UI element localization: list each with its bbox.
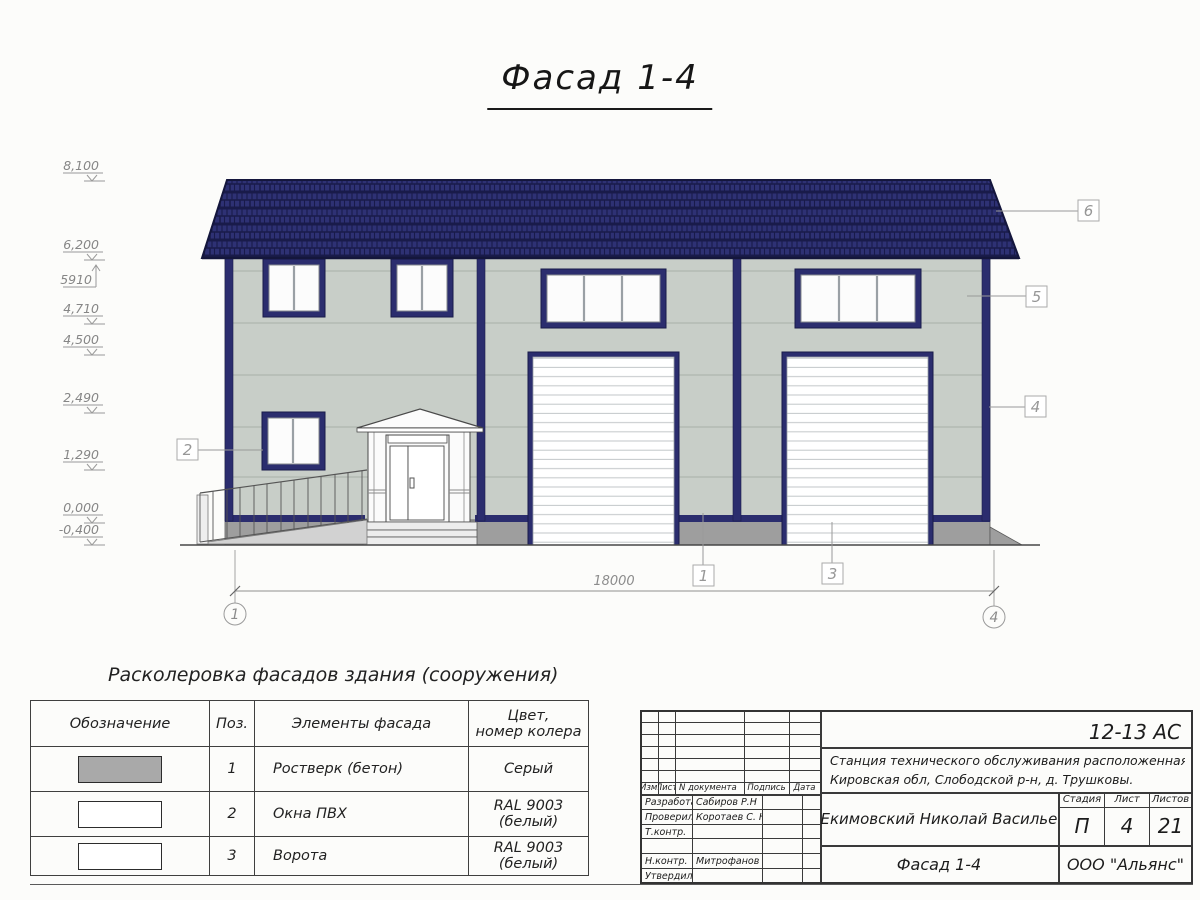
legend-header-pos: Поз.	[210, 701, 255, 747]
roof	[202, 180, 1019, 258]
legend-row: 3 Ворота RAL 9003 (белый)	[31, 837, 589, 876]
stamp-name: Сабиров Р.Н	[696, 796, 762, 809]
legend-color: RAL 9003 (белый)	[469, 792, 589, 837]
plinth-right-wedge	[990, 527, 1022, 545]
stamp-role: Н.контр.	[645, 855, 692, 868]
window-upper-mid	[391, 259, 453, 317]
svg-text:5910: 5910	[60, 272, 92, 287]
stamp-object-line2: Кировская обл, Слободской р-н, д. Трушко…	[830, 769, 1185, 789]
stamp-role: Утвердил	[645, 870, 692, 882]
gate-center	[528, 352, 679, 545]
dimension-line: 18000	[230, 550, 999, 606]
elevation-mark: 4,500	[63, 332, 105, 355]
svg-text:3: 3	[828, 565, 838, 583]
legend-color: RAL 9003 (белый)	[469, 837, 589, 876]
elevation-mark: 4,710	[63, 301, 105, 324]
legend-element: Ворота	[255, 837, 469, 876]
swatch-white	[78, 843, 162, 870]
elevation-mark: 0,000	[63, 500, 105, 523]
stamp-role: Т.контр.	[645, 826, 692, 838]
svg-text:4: 4	[1031, 398, 1041, 416]
swatch-white	[78, 801, 162, 828]
elevation-marks: 8,100 6,200 5910 4,710 4,500	[59, 158, 105, 545]
drawing-sheet: Фасад 1-4	[0, 0, 1200, 900]
stamp-object-line1: Станция технического обслуживания распол…	[830, 750, 1185, 770]
legend-color: Серый	[469, 747, 589, 792]
stamp-stage-value: П	[1060, 808, 1104, 844]
svg-text:2,490: 2,490	[63, 390, 99, 405]
stamp-sheets-label: Листов	[1150, 793, 1191, 806]
window-upper-left	[263, 259, 325, 317]
elevation-mark: -0,400	[59, 522, 105, 545]
legend-pos: 3	[210, 837, 255, 876]
elevation-mark: 2,490	[63, 390, 105, 413]
porch-steps	[363, 522, 477, 545]
svg-text:5: 5	[1032, 288, 1042, 306]
svg-text:0,000: 0,000	[63, 500, 99, 515]
svg-text:6,200: 6,200	[63, 237, 99, 252]
stamp-company: ООО "Альянс"	[1060, 847, 1191, 882]
stamp-role: Проверил	[645, 811, 692, 824]
callout-6: 6	[996, 200, 1099, 221]
stamp-sheet-value: 4	[1105, 808, 1149, 844]
legend-title: Расколеровка фасадов здания (сооружения)	[108, 664, 558, 686]
gate-right	[782, 352, 933, 545]
svg-text:1: 1	[699, 567, 709, 585]
svg-text:1: 1	[231, 607, 240, 623]
svg-text:8,100: 8,100	[63, 158, 99, 173]
stamp-col-ndoc: N документа	[679, 782, 744, 794]
title-block: Изм. Лист N документа Подпись Дата Разра…	[640, 710, 1193, 884]
legend-header-row: Обозначение Поз. Элементы фасада Цвет, н…	[31, 701, 589, 747]
stamp-sheet-label: Лист	[1105, 793, 1149, 806]
stamp-role: Разработал	[645, 796, 692, 809]
svg-text:4,710: 4,710	[63, 301, 99, 316]
legend-pos: 1	[210, 747, 255, 792]
stamp-col-list: Лист	[658, 782, 675, 794]
svg-text:6: 6	[1084, 202, 1094, 220]
stamp-name: Коротаев С. Н.	[696, 811, 762, 824]
window-wide-center	[541, 269, 666, 328]
svg-text:4: 4	[990, 610, 999, 626]
legend-header-color: Цвет, номер колера	[469, 701, 589, 747]
stamp-col-data: Дата	[789, 782, 820, 794]
stamp-sheets-value: 21	[1150, 808, 1191, 844]
legend-element: Окна ПВХ	[255, 792, 469, 837]
elevation-mark: 1,290	[63, 447, 105, 470]
stamp-col-izm: Изм.	[642, 782, 658, 794]
door-handle	[410, 478, 414, 488]
swatch-gray	[78, 756, 162, 783]
dimension-value: 18000	[593, 574, 634, 589]
legend-element: Ростверк (бетон)	[255, 747, 469, 792]
legend-pos: 2	[210, 792, 255, 837]
door-transom	[388, 435, 447, 443]
stamp-doc-code: 12-13 АС	[820, 718, 1181, 745]
stamp-name: Митрофанов Я. А.	[696, 855, 762, 868]
legend-header-element: Элементы фасада	[255, 701, 469, 747]
stamp-stage-label: Стадия	[1060, 793, 1104, 806]
entrance-porch	[357, 409, 483, 545]
elevation-mark: 6,200	[63, 237, 105, 260]
facade-drawing: 8,100 6,200 5910 4,710 4,500	[0, 0, 1200, 660]
axis-marker-right: 4	[983, 606, 1005, 628]
legend-row: 1 Ростверк (бетон) Серый	[31, 747, 589, 792]
stamp-sheet-name: Фасад 1-4	[820, 847, 1058, 882]
callout-4: 4	[989, 396, 1046, 417]
axis-marker-left: 1	[224, 603, 246, 625]
window-wide-right	[795, 269, 921, 328]
door-leaf-narrow	[390, 446, 408, 520]
page-border-bottom	[30, 884, 1193, 885]
legend-row: 2 Окна ПВХ RAL 9003 (белый)	[31, 792, 589, 837]
svg-text:-0,400: -0,400	[59, 522, 99, 537]
svg-text:4,500: 4,500	[63, 332, 99, 347]
legend-table: Обозначение Поз. Элементы фасада Цвет, н…	[30, 700, 589, 876]
stamp-col-podpis: Подпись	[744, 782, 789, 794]
stamp-client: ИП Екимовский Николай Васильевич	[820, 794, 1058, 843]
svg-text:2: 2	[183, 441, 193, 459]
elevation-mark-arrow-up: 5910	[60, 265, 100, 287]
window-lower-left	[262, 412, 325, 470]
elevation-mark: 8,100	[63, 158, 105, 181]
svg-text:1,290: 1,290	[63, 447, 99, 462]
legend-header-designation: Обозначение	[31, 701, 210, 747]
